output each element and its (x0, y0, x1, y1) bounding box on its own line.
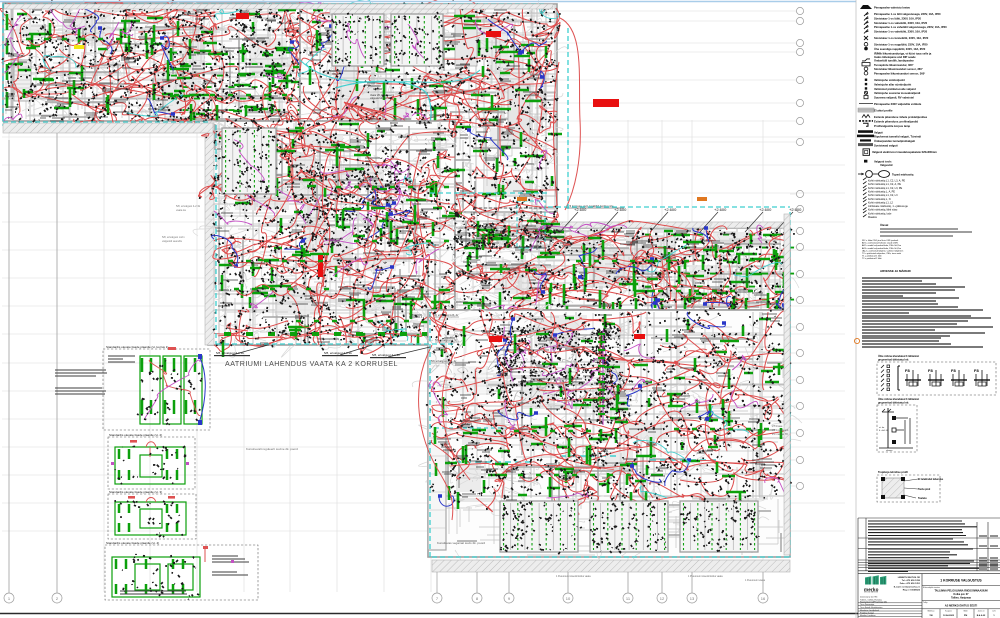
svg-text:Süvistatav 1-os nupplüliti, 23: Süvistatav 1-os nupplüliti, 230V, 10A, I… (874, 43, 928, 47)
svg-text:Reg nr 10068022: Reg nr 10068022 (903, 589, 921, 591)
svg-text:T2 = pistikutud 2 lüliti: T2 = pistikutud 2 lüliti (862, 257, 882, 260)
svg-text:Maadus: Maadus (868, 216, 878, 219)
svg-text:5/8, erivalgust 4-2.3k: 5/8, erivalgust 4-2.3k (176, 204, 201, 208)
svg-text:Muudau Lisatitena: Muudau Lisatitena (860, 614, 876, 617)
svg-text:lisaks tähelepanu und DIP sead: lisaks tähelepanu und DIP seade (874, 55, 916, 59)
svg-text:AV3 = mobiil valjundeid lode,: AV3 = mobiil valjundeid lode, 230v 3x1,5… (862, 247, 901, 250)
svg-text:Tänu Saimik Vastakirjutaja: Tänu Saimik Vastakirjutaja (860, 606, 883, 609)
svg-text:Valmistud pistikutooside valju: Valmistud pistikutooside valjund (874, 87, 916, 91)
svg-text:Valgustid: Valgustid (880, 163, 893, 167)
svg-text:Kohti märkustiq L1, C2, L3, A,: Kohti märkustiq L1, C2, L3, A, PE (868, 180, 905, 183)
svg-text:Kohti märkustiq L, A, PE: Kohti märkustiq L, A, PE (868, 190, 895, 193)
svg-text:+2.600: +2.600 (664, 207, 677, 212)
svg-text:F8: F8 (928, 368, 933, 373)
svg-text:Kunstlevas vegamat suvis 2k. p: Kunstlevas vegamat suvis 2k. poord (437, 541, 485, 545)
svg-text:1 Pesuruumi vaata: 1 Pesuruumi vaata (745, 579, 766, 582)
svg-text:Kunstnevalt reguleerit suvine: Kunstnevalt reguleerit suvine 2k. poord (246, 447, 298, 451)
svg-text:Tellija: Tellija (923, 602, 928, 604)
svg-text:12.04.2023: 12.04.2023 (943, 614, 955, 617)
svg-text:Mõõt: Mõõt (964, 609, 968, 612)
svg-text:WC = lülita ON1 järel kuiv ON1: WC = lülita ON1 järel kuiv ON1 jooksult (862, 239, 899, 242)
svg-text:Suvistavad valguti: Suvistavad valguti (874, 143, 898, 147)
svg-text:vaata ka: vaata ka (176, 208, 186, 212)
svg-text:Leht: Leht (992, 609, 996, 612)
svg-text:vt. ka: vt. ka (879, 426, 885, 429)
svg-text:Juhitavate märkustiq, 1 + jätk: Juhitavate märkustiq, 1 + jätkuva ge (868, 205, 909, 208)
svg-text:Turvapiirde liikumisandur, 360: Turvapiirde liikumisandur, 360° (874, 63, 914, 67)
svg-text:Pinnapealne 1-os vahelülit val: Pinnapealne 1-os vahelülit valgustusega,… (874, 25, 947, 29)
svg-text:1 Pesuruumi siseviimistlus vaa: 1 Pesuruumi siseviimistlus vaata (556, 575, 591, 578)
svg-text:Valmisjuhe sümboljuoht: Valmisjuhe sümboljuoht (874, 78, 905, 82)
svg-text:T1 = pistikutud 1 lüliti: T1 = pistikutud 1 lüliti (862, 255, 882, 258)
svg-text:PM: PM (964, 615, 967, 617)
svg-text:Pinnapealne 230V valjundite vo: Pinnapealne 230V valjundite voldude (874, 102, 922, 106)
svg-text:Tuped märkustiq: Tuped märkustiq (892, 173, 914, 177)
svg-text:EI ahtel profile: EI ahtel profile (874, 109, 893, 113)
svg-text:13: 13 (690, 596, 695, 601)
svg-text:Muudatus Lisatiljakord: Muudatus Lisatiljakord (860, 609, 879, 612)
svg-text:16: 16 (761, 596, 766, 601)
svg-text:Raamatukontroll/Peaehitaja Üll: Raamatukontroll/Peaehitaja Ülle (860, 601, 887, 604)
svg-text:Süvistatav 1-os tunnelüliti, 2: Süvistatav 1-os tunnelüliti, 230V, 10A, … (874, 36, 929, 40)
svg-text:Kohti märkustiq L1, C2, L3, PE: Kohti märkustiq L1, C2, L3, PE (868, 187, 903, 190)
svg-text:Ehitusobjekti nimetus: Ehitusobjekti nimetus (923, 586, 940, 589)
svg-text:Suurema valjundi, RV valmistel: Suurema valjundi, RV valmistel (874, 95, 914, 99)
svg-text:LEMBITU EHITUS OÜ: LEMBITU EHITUS OÜ (898, 576, 921, 579)
svg-text:AV1 = valmistatud lülituste se: AV1 = valmistatud lülituste seade 230V (862, 242, 899, 245)
svg-text:F8: F8 (905, 368, 910, 373)
svg-text:Joonis nr: Joonis nr (978, 609, 985, 612)
svg-text:skeem: skeem (886, 450, 893, 452)
svg-text:Tänu Peavastaja: Tänu Peavastaja (860, 603, 875, 606)
svg-text:Esitevle pikendusv. tähele pro: Esitevle pikendusv. tähele prokletijusti… (874, 115, 928, 119)
svg-text:IR/Mik liikumisanduriga, vt fü: IR/Mik liikumisanduriga, vt füüsi tuua s… (874, 51, 932, 55)
svg-text:Standardis olevate lisade plaa: Standardis olevate lisade plaanile (vt. … (106, 541, 159, 545)
svg-text:grupeeritud tähistatud nii:: grupeeritud tähistatud nii: (878, 401, 909, 404)
svg-text:merko: merko (864, 587, 879, 592)
svg-text:Kohti märkustiq, lode: Kohti märkustiq, lode (868, 212, 892, 215)
svg-text:Kohti märkustiq L1, C2, A, PE: Kohti märkustiq L1, C2, A, PE (868, 183, 901, 186)
svg-text:Standardis olevate lisade plaa: Standardis olevate lisade plaanile (vt. … (109, 433, 162, 437)
svg-text:Valgusti elektrivool muudatusp: Valgusti elektrivool muudatuspaketele 02… (872, 150, 937, 154)
svg-text:Süvistatav 1-os vahelüliti, 23: Süvistatav 1-os vahelüliti, 230V, 10A, I… (874, 29, 928, 33)
svg-text:E-mail: merko@merko.ee: E-mail: merko@merko.ee (894, 586, 921, 588)
svg-text:VT4 tase: VT4 tase (772, 424, 783, 428)
svg-text:+2.600: +2.600 (714, 207, 727, 212)
svg-text:Valguti: Valguti (874, 130, 883, 134)
svg-text:Standardis olevate lisade plaa: Standardis olevate lisade plaanile (vt. … (109, 490, 162, 494)
svg-text:Kuupäev: Kuupäev (945, 610, 952, 612)
svg-text:Kohti märkustiq L, N: Kohti märkustiq L, N (868, 198, 891, 201)
svg-text:valgustid asendis: valgustid asendis (162, 239, 183, 243)
svg-text:F8: F8 (974, 368, 979, 373)
svg-text:Kohti märkustiq L1, L2: Kohti märkustiq L1, L2 (868, 201, 893, 204)
svg-text:Pinnapealne liikumisanduri sen: Pinnapealne liikumisanduri sensor, 360° (874, 72, 925, 76)
svg-text:Pinnapealne 1-os lülit valgust: Pinnapealne 1-os lülit valgustusega, 230… (874, 12, 941, 16)
svg-text:Valmisjuhe allar sümboljuoht: Valmisjuhe allar sümboljuoht (874, 82, 911, 86)
svg-text:5/8, erivalgust 4-1.3k: 5/8, erivalgust 4-1.3k (216, 351, 244, 355)
svg-text:grupeeritud tähistatud nii:: grupeeritud tähistatud nii: (878, 358, 909, 361)
svg-text:AV2 = mobiil valjundeid lode,: AV2 = mobiil valjundeid lode, 230v 3x2,5… (862, 244, 901, 247)
svg-text:B-4.0-02: B-4.0-02 (977, 614, 986, 617)
svg-text:Süvistatav 1-os lüliti, 230V,: Süvistatav 1-os lüliti, 230V, 10A, IP20 (874, 16, 921, 20)
svg-text:Standardis olevate lisade plaa: Standardis olevate lisade plaanile (vt. … (106, 345, 168, 349)
svg-text:Pinnapealne valmistu loetav: Pinnapealne valmistu loetav (874, 6, 911, 10)
svg-text:EI tulekindel lahendus: EI tulekindel lahendus (918, 478, 944, 481)
svg-text:F8: F8 (951, 368, 956, 373)
svg-text:VT3 reguleerit: VT3 reguleerit (772, 428, 789, 432)
svg-text:1 KORRUSE VALGUSTUS: 1 KORRUSE VALGUSTUS (940, 579, 982, 583)
svg-text:4. sk6-14: 4. sk6-14 (879, 430, 889, 432)
svg-text:Mõõt kav: Mõõt kav (928, 609, 935, 612)
svg-text:Trepikoja tehnilise profil: Trepikoja tehnilise profil (878, 470, 908, 474)
svg-text:AATRIUMI LAHENDUS VAATA KA 2 K: AATRIUMI LAHENDUS VAATA KA 2 KORRUSEL (225, 359, 398, 368)
svg-text:Ripuformat tunnelid valguti, T: Ripuformat tunnelid valguti, Türvindi (874, 135, 921, 139)
svg-text:PC marise 70: PC marise 70 (772, 432, 788, 436)
svg-text:AS MERKO EHITUS EESTI: AS MERKO EHITUS EESTI (945, 604, 978, 608)
svg-text:Tuulutu: Tuulutu (918, 497, 927, 500)
svg-text:12: 12 (660, 596, 665, 601)
svg-text:Faks +372 650 1251: Faks +372 650 1251 (900, 583, 921, 585)
svg-text:Projektai Tanjad: Projektai Tanjad (860, 612, 873, 615)
svg-text:valguste lahutus siin: valguste lahutus siin (370, 97, 392, 100)
svg-text:5/8, erivalgust m2m: 5/8, erivalgust m2m (162, 235, 185, 239)
svg-text:+2.600: +2.600 (789, 207, 802, 212)
svg-text:Ümberlülil tundlik, lambipealn: Ümberlülil tundlik, lambipealne (874, 58, 914, 62)
svg-text:Tardu pind: Tardu pind (918, 488, 931, 491)
svg-text:Tallinn, Harjumaa: Tallinn, Harjumaa (951, 596, 971, 599)
svg-text:Profilvalgustite korpus lamp: Profilvalgustite korpus lamp (874, 124, 910, 128)
svg-text:5/8, erivalgust 4-1.3k: 5/8, erivalgust 4-1.3k (324, 351, 352, 355)
svg-text:Valmisjuhe suurema toosealval: Valmisjuhe suurema toosealvaljundi (874, 91, 921, 95)
svg-text:Ümberpandav tunnelpindvalguti: Ümberpandav tunnelpindvalguti (874, 139, 915, 143)
svg-text:Ühe asendiga nupplüliti, 230V,: Ühe asendiga nupplüliti, 230V, 10A, IP20 (874, 47, 926, 51)
svg-text:+2.600: +2.600 (759, 207, 772, 212)
svg-text:10: 10 (566, 596, 571, 601)
svg-text:vAL2 = valmistud lülijuhte, va: vAL2 = valmistud lülijuhte, valmine lüli… (862, 249, 903, 252)
svg-text:Esitevle pikendusv. profilvalj: Esitevle pikendusv. profilvaljundid (874, 119, 918, 123)
svg-text:Süvistatav 1-os vahelüliti, 23: Süvistatav 1-os vahelüliti, 230V, 10A, I… (874, 21, 928, 25)
svg-text:Üleval: Üleval (880, 222, 888, 227)
svg-text:Järvevana tee 9G: Järvevana tee 9G (860, 596, 878, 599)
svg-text:Kohti märkustiq L1, C2, L3: Kohti märkustiq L1, C2, L3 (868, 194, 898, 197)
svg-text:ARVESSE JA MÄRGID: ARVESSE JA MÄRGID (880, 269, 911, 273)
svg-text:Tel +372 650 1250: Tel +372 650 1250 (902, 580, 921, 582)
svg-text:1 Pesuruumi siseviimistlus vaa: 1 Pesuruumi siseviimistlus vaata (688, 575, 723, 578)
svg-text:Kohti märkustiq, lähti vöau: Kohti märkustiq, lähti vöau (868, 209, 898, 212)
svg-text:TV = pistikutud valjundus, 230: TV = pistikutud valjundus, 230v, tuua sa… (862, 252, 902, 255)
svg-text:5/8, erivalgust 4-1.3k: 5/8, erivalgust 4-1.3k (372, 353, 400, 357)
svg-text:Süvistatav liikumisanduri sens: Süvistatav liikumisanduri sensor, 360° (874, 67, 923, 71)
